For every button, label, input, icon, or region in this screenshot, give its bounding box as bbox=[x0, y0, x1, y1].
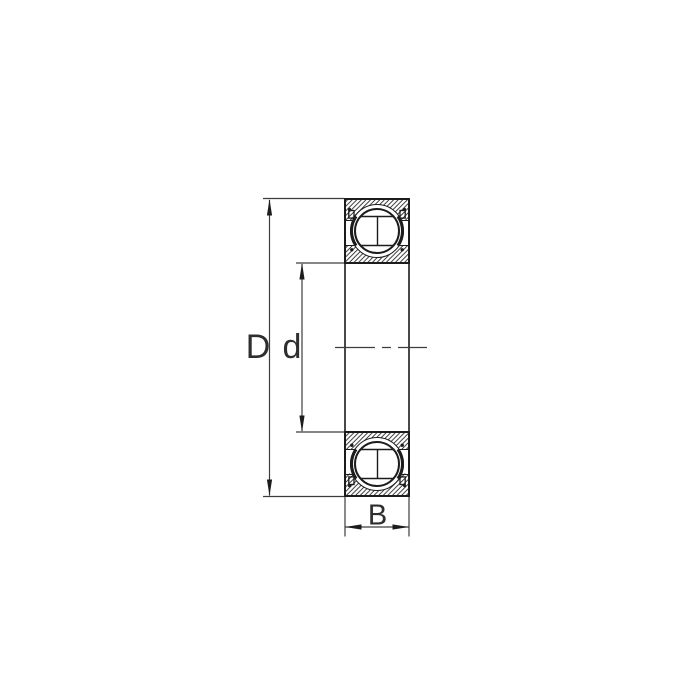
bearing-section-top bbox=[345, 199, 409, 263]
dimension-B: B bbox=[345, 497, 409, 537]
shield-lip-left-bottom bbox=[350, 444, 353, 447]
dimension-d: d bbox=[283, 263, 344, 432]
arrow-up-icon bbox=[267, 199, 272, 216]
label-outer-diameter: D bbox=[246, 328, 271, 366]
label-bore-diameter: d bbox=[283, 328, 302, 366]
arrow-right-icon bbox=[393, 524, 410, 529]
shield-lip-right-bottom bbox=[401, 444, 404, 447]
arrow-down-icon bbox=[299, 416, 304, 433]
shield-tab-left-top bbox=[348, 208, 351, 211]
arrow-up-icon bbox=[299, 263, 304, 280]
bearing-section-bottom bbox=[345, 432, 409, 496]
shield-lip-left-top bbox=[350, 248, 353, 251]
shield-tab-left-bottom bbox=[348, 484, 351, 487]
arrow-left-icon bbox=[345, 524, 362, 529]
bearing-technical-drawing: D d B bbox=[0, 0, 700, 700]
label-width: B bbox=[368, 500, 387, 532]
shield-tab-right-top bbox=[403, 208, 406, 211]
shield-tab-right-bottom bbox=[403, 484, 406, 487]
drawing-svg: D d B bbox=[0, 0, 700, 700]
shield-lip-right-top bbox=[401, 248, 404, 251]
arrow-down-icon bbox=[267, 480, 272, 497]
